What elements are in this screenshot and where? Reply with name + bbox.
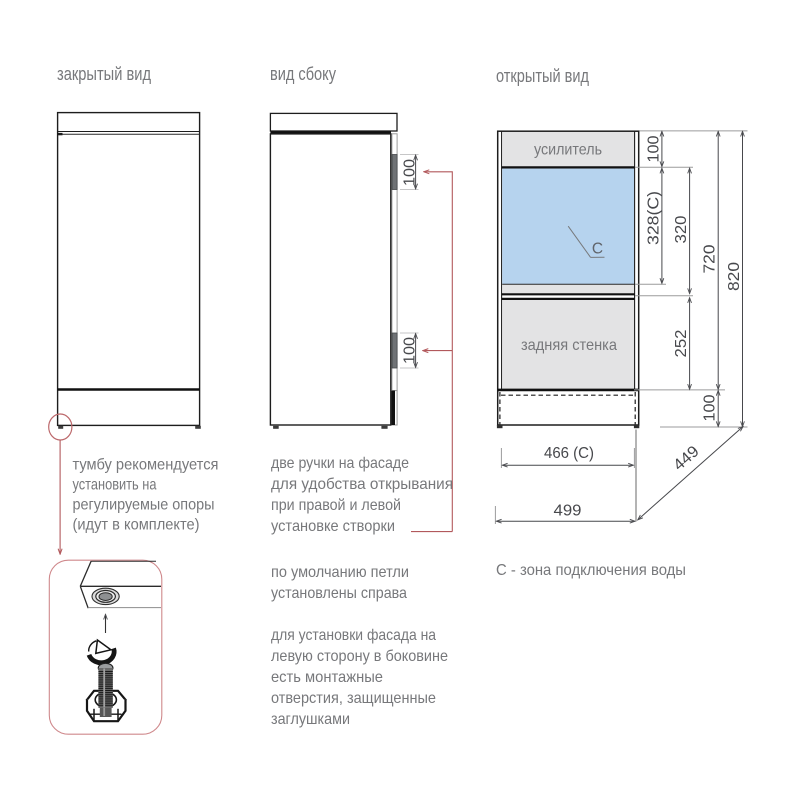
svg-text:вид сбоку: вид сбоку — [270, 64, 336, 84]
svg-text:заглушками: заглушками — [271, 711, 350, 728]
svg-text:499: 499 — [554, 503, 582, 520]
svg-text:320: 320 — [673, 215, 690, 243]
svg-text:закрытый вид: закрытый вид — [57, 64, 151, 84]
svg-text:720: 720 — [702, 244, 719, 273]
svg-text:две ручки на фасаде: две ручки на фасаде — [271, 455, 409, 472]
svg-text:есть монтажные: есть монтажные — [271, 669, 383, 686]
svg-text:для удобства открывания: для удобства открывания — [271, 476, 453, 493]
svg-text:100: 100 — [402, 159, 419, 186]
svg-text:С: С — [592, 241, 603, 258]
svg-text:252: 252 — [673, 329, 690, 357]
svg-text:установлены справа: установлены справа — [271, 585, 407, 602]
svg-text:левую сторону в боковине: левую сторону в боковине — [271, 648, 448, 665]
svg-text:820: 820 — [726, 262, 743, 291]
svg-text:усилитель: усилитель — [534, 142, 602, 159]
svg-text:установить на: установить на — [73, 477, 157, 494]
svg-text:регулируемые опоры: регулируемые опоры — [73, 497, 215, 514]
svg-text:тумбу рекомендуется: тумбу рекомендуется — [73, 457, 219, 474]
svg-text:отверстия, защищенные: отверстия, защищенные — [271, 690, 436, 707]
svg-text:открытый вид: открытый вид — [496, 66, 589, 86]
svg-text:по умолчанию петли: по умолчанию петли — [271, 564, 409, 581]
svg-text:установке створки: установке створки — [271, 518, 395, 535]
svg-text:466 (С): 466 (С) — [544, 445, 594, 462]
svg-text:задняя стенка: задняя стенка — [521, 337, 617, 354]
svg-text:100: 100 — [402, 337, 419, 364]
svg-text:при правой и левой: при правой и левой — [271, 497, 401, 514]
svg-text:для установки фасада на: для установки фасада на — [271, 627, 436, 644]
svg-text:328(С): 328(С) — [645, 191, 662, 245]
svg-text:100: 100 — [645, 135, 662, 162]
svg-text:(идут в комплекте): (идут в комплекте) — [73, 517, 200, 534]
svg-text:449: 449 — [670, 443, 702, 474]
svg-text:100: 100 — [702, 394, 719, 421]
svg-text:С - зона подключения воды: С - зона подключения воды — [496, 562, 686, 579]
